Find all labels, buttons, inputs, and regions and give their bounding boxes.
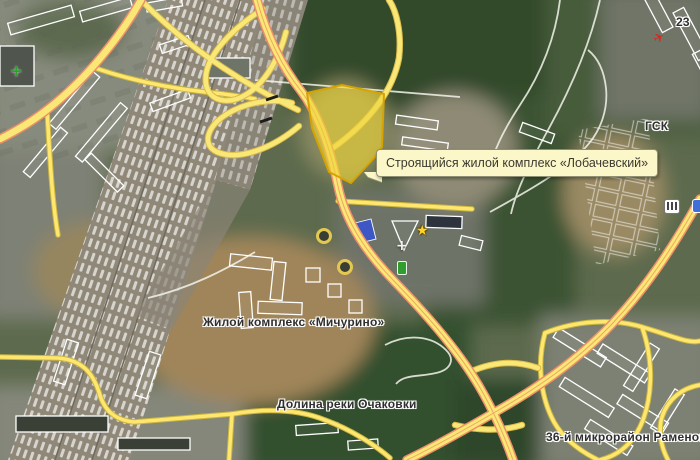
label-ramenki-36: 36-й микрорайон Раменок	[546, 430, 700, 444]
gate-poi-icon	[664, 199, 680, 214]
label-building-23: 23	[676, 15, 690, 29]
map-canvas[interactable]	[0, 0, 700, 460]
green-plus-icon: +	[10, 62, 23, 80]
green-marker-icon	[397, 261, 407, 275]
blue-poi-icon	[692, 199, 700, 213]
cross-icon: +	[396, 238, 408, 254]
label-gsk: ГСК	[645, 119, 668, 133]
satellite-map[interactable]: Жилой комплекс «Мичурино» Долина реки Оч…	[0, 0, 700, 460]
star-icon: ★	[416, 223, 429, 239]
label-ochakovka-valley: Долина реки Очаковки	[277, 397, 417, 411]
parcel-tooltip[interactable]: Строящийся жилой комплекс «Лобачевский»	[376, 149, 658, 177]
label-michurino: Жилой комплекс «Мичурино»	[203, 315, 384, 329]
